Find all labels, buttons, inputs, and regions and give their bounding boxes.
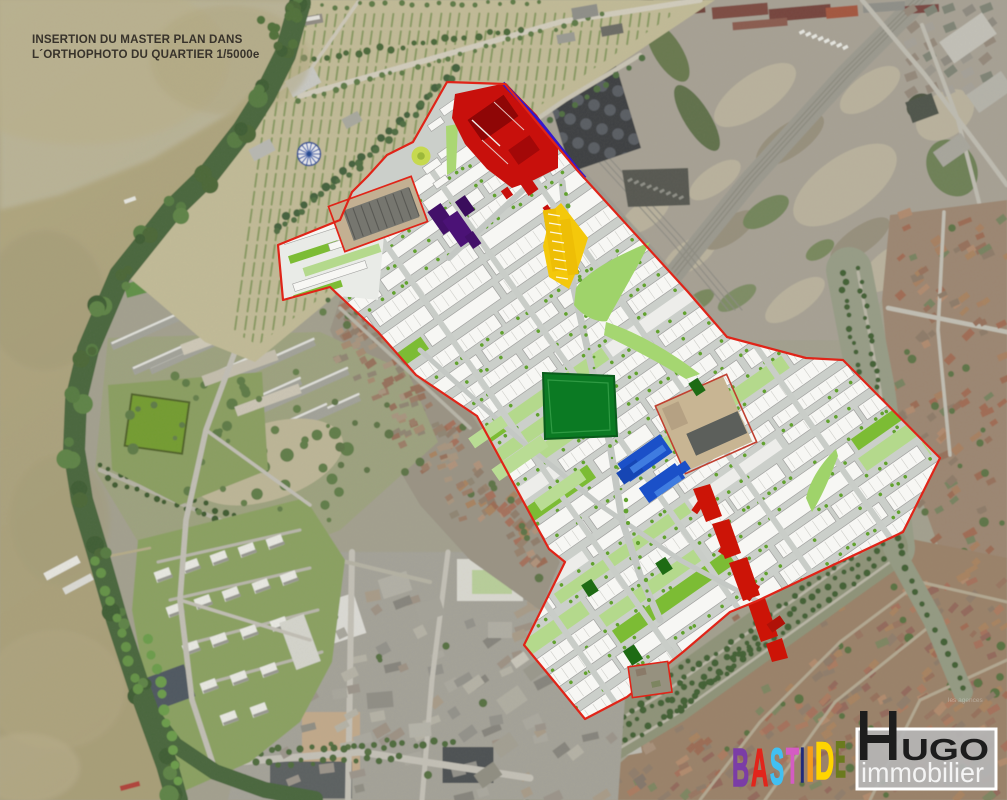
svg-text:A: A (751, 738, 768, 797)
svg-text:I: I (800, 738, 805, 793)
svg-text:T: T (786, 739, 799, 795)
svg-text:D: D (815, 731, 834, 790)
svg-text:E: E (835, 733, 846, 790)
svg-text:INSERTION DU MASTER PLAN DANS: INSERTION DU MASTER PLAN DANS (32, 33, 243, 46)
svg-text:I: I (806, 737, 814, 792)
svg-text:les agences: les agences (948, 697, 983, 704)
svg-text:L´ORTHOPHOTO DU QUARTIER 1/500: L´ORTHOPHOTO DU QUARTIER 1/5000e (32, 48, 260, 61)
svg-text:B: B (732, 737, 749, 798)
svg-text:S: S (770, 740, 784, 796)
svg-text:immobilier: immobilier (861, 757, 984, 788)
